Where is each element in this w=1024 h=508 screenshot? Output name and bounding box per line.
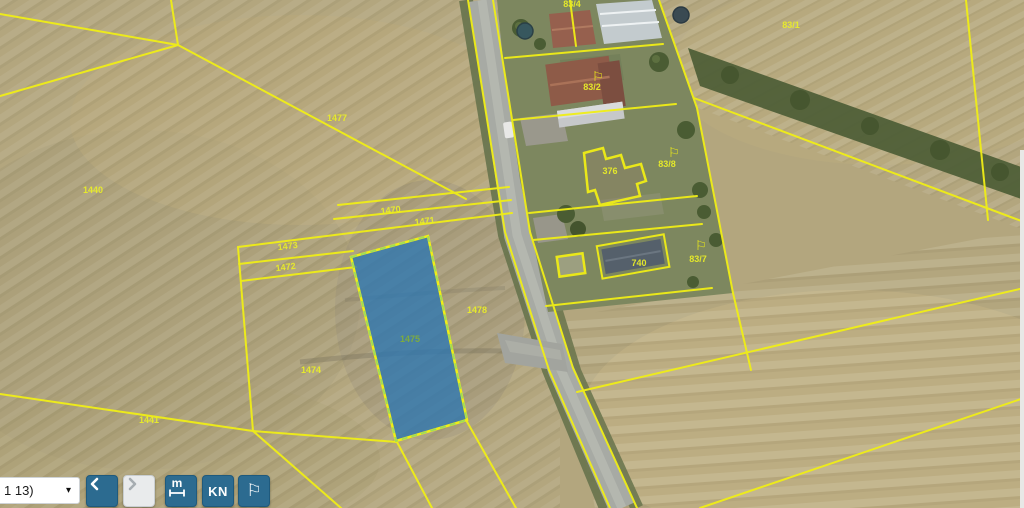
- parcel-label: 83/2: [583, 82, 601, 92]
- kn-label: KN: [208, 484, 228, 499]
- map-canvas[interactable]: ⚐⚐⚐ 147714401441147414701471147314721475…: [0, 0, 1024, 508]
- parcel-label: 740: [631, 258, 646, 268]
- layer-dropdown[interactable]: 1 13) ▾: [0, 477, 80, 504]
- chevron-left-icon: [87, 476, 103, 492]
- forward-button[interactable]: [123, 475, 155, 507]
- parcel-label: 1474: [301, 365, 321, 375]
- back-button[interactable]: [86, 475, 118, 507]
- measure-m-label: m: [172, 476, 183, 490]
- select-polygon-button[interactable]: ⚐: [238, 475, 270, 507]
- parcel-label: 1477: [327, 113, 347, 123]
- kn-cadastre-button[interactable]: KN: [202, 475, 234, 507]
- parcel-label: 1440: [83, 185, 103, 195]
- measure-length-button[interactable]: m: [165, 475, 197, 507]
- parcel-label: 83/7: [689, 254, 707, 264]
- flag-polygon-icon: ⚐: [246, 483, 261, 500]
- layer-dropdown-value: 1 13): [4, 483, 34, 498]
- parcel-label: 83/8: [658, 159, 676, 169]
- parcel-label: 83/4: [563, 0, 581, 9]
- right-edge-gutter: [1020, 150, 1024, 508]
- parcel-label: 1475: [400, 334, 420, 344]
- parcel-label: 1441: [139, 415, 159, 425]
- flag-marker-icon[interactable]: ⚐: [695, 239, 707, 254]
- chevron-down-icon: ▾: [66, 486, 71, 496]
- parcel-label: 83/1: [782, 20, 800, 30]
- measure-length-icon: m: [166, 476, 188, 498]
- map-viewer: ⚐⚐⚐ 147714401441147414701471147314721475…: [0, 0, 1024, 508]
- chevron-right-icon: [124, 476, 140, 492]
- parcel-label: 376: [602, 166, 617, 176]
- parcel-label: 1478: [467, 305, 487, 315]
